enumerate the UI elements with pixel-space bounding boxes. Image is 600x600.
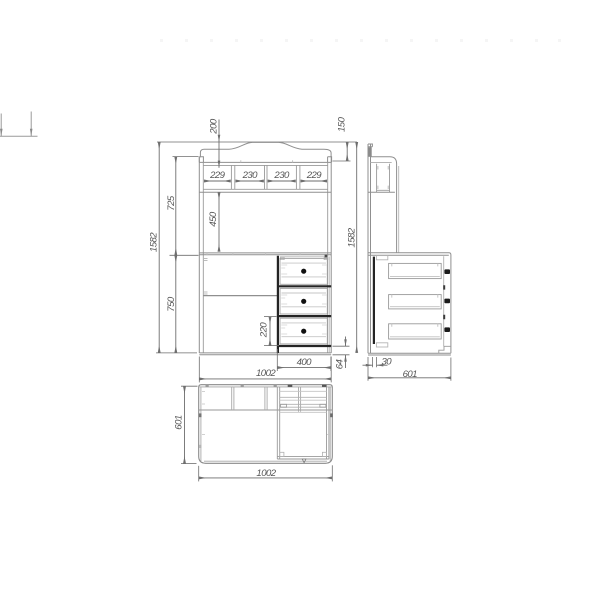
svg-text:601: 601: [173, 415, 184, 430]
svg-text:1582: 1582: [346, 227, 357, 247]
svg-text:450: 450: [208, 211, 219, 227]
svg-text:220: 220: [259, 322, 270, 339]
svg-text:200: 200: [209, 118, 220, 135]
svg-text:750: 750: [166, 296, 177, 312]
svg-text:64: 64: [335, 360, 346, 370]
svg-text:400: 400: [297, 357, 313, 368]
svg-text:229: 229: [306, 170, 323, 181]
svg-text:725: 725: [166, 195, 177, 211]
svg-text:230: 230: [242, 170, 259, 181]
svg-text:150: 150: [337, 116, 348, 132]
svg-text:601: 601: [403, 369, 418, 380]
svg-text:1002: 1002: [256, 368, 276, 379]
svg-text:1582: 1582: [149, 232, 160, 252]
svg-text:1002: 1002: [256, 468, 276, 479]
svg-text:229: 229: [209, 170, 226, 181]
svg-text:230: 230: [273, 170, 290, 181]
svg-text:30: 30: [382, 356, 393, 367]
